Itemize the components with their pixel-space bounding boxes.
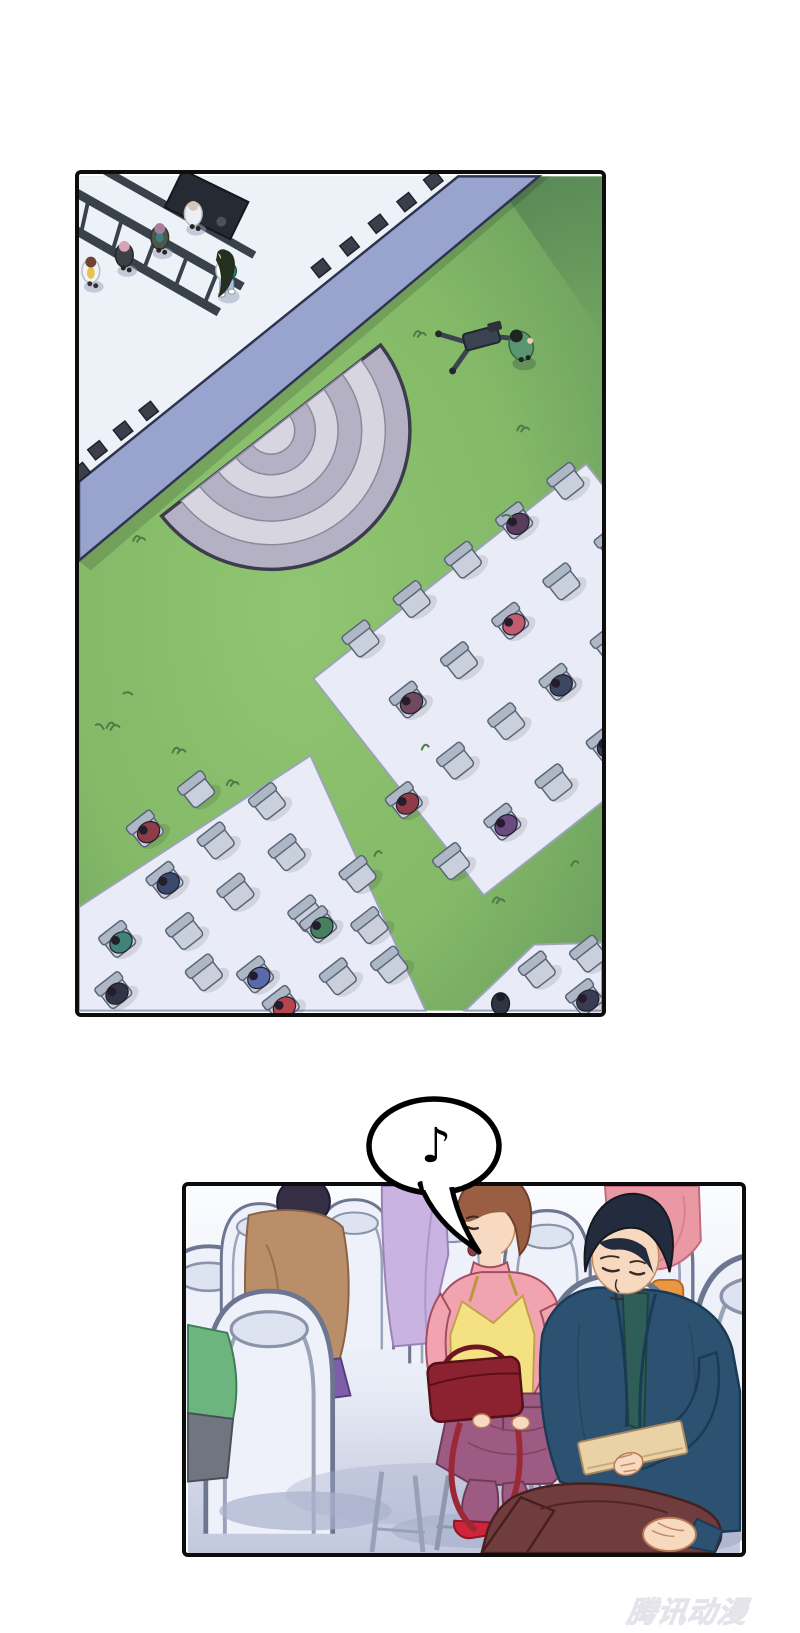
comic-page: { "page": {"width": 800, "height": 1633,… <box>0 0 800 1633</box>
platform-watermark: 腾讯动漫 <box>625 1589 795 1627</box>
aerial-scene-art <box>79 174 602 1013</box>
man-clasped-hands <box>643 1518 696 1551</box>
speech-bubble-art: ♪ <box>350 1092 530 1270</box>
comic-panel-aerial <box>75 170 606 1017</box>
woman-hand <box>473 1414 491 1428</box>
woman-hand <box>512 1416 530 1430</box>
person-green <box>188 1325 236 1482</box>
speech-bubble: ♪ <box>350 1092 530 1270</box>
music-note: ♪ <box>421 1118 452 1174</box>
woman-front-leg <box>462 1480 498 1523</box>
corner-figure <box>492 992 510 1013</box>
